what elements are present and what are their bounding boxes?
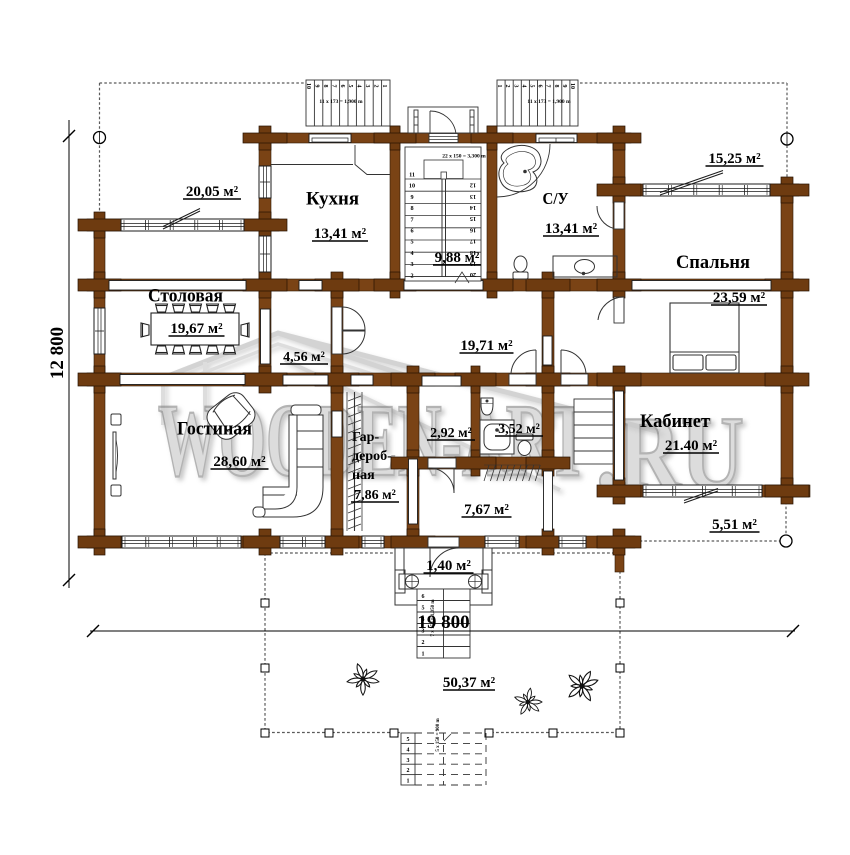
svg-text:5: 5 <box>528 85 534 88</box>
svg-text:2: 2 <box>504 84 510 87</box>
svg-text:3,52 м²: 3,52 м² <box>498 422 540 437</box>
svg-text:5: 5 <box>422 606 425 612</box>
svg-text:5,51 м²: 5,51 м² <box>712 517 757 533</box>
svg-text:11: 11 <box>409 172 415 179</box>
svg-text:4,56 м²: 4,56 м² <box>283 350 325 365</box>
svg-text:Гар-: Гар- <box>352 430 379 445</box>
svg-text:2: 2 <box>410 272 413 279</box>
svg-text:17: 17 <box>470 238 476 245</box>
svg-text:5: 5 <box>347 85 353 88</box>
svg-text:13: 13 <box>470 193 476 200</box>
svg-text:8: 8 <box>553 85 559 88</box>
svg-text:5: 5 <box>407 737 410 743</box>
svg-text:6: 6 <box>537 85 543 88</box>
svg-text:2: 2 <box>372 85 378 88</box>
svg-text:4: 4 <box>356 85 362 88</box>
svg-text:Кабинет: Кабинет <box>640 411 711 432</box>
svg-text:С/У: С/У <box>543 189 569 208</box>
svg-text:9: 9 <box>410 194 413 201</box>
svg-text:13,41 м²: 13,41 м² <box>314 226 367 242</box>
svg-text:3: 3 <box>410 261 413 268</box>
svg-text:1: 1 <box>381 85 387 88</box>
svg-text:4: 4 <box>407 747 410 753</box>
svg-text:7,67 м²: 7,67 м² <box>464 502 509 518</box>
svg-text:1: 1 <box>496 85 502 88</box>
svg-text:9: 9 <box>314 85 320 88</box>
svg-text:14: 14 <box>470 204 476 211</box>
svg-text:15: 15 <box>470 215 476 222</box>
svg-text:11 x 173 = 1,900 m: 11 x 173 = 1,900 m <box>319 99 363 105</box>
svg-text:5: 5 <box>410 239 413 246</box>
svg-text:4: 4 <box>520 85 526 88</box>
svg-text:6: 6 <box>339 85 345 88</box>
svg-text:9: 9 <box>561 85 567 88</box>
svg-text:22 x 150 = 3,300 m: 22 x 150 = 3,300 m <box>442 154 486 160</box>
svg-text:Столовая: Столовая <box>148 286 223 307</box>
svg-text:10: 10 <box>409 183 415 190</box>
svg-text:1: 1 <box>407 779 410 785</box>
svg-text:20: 20 <box>470 271 476 278</box>
svg-text:5 x 150 = 900 m: 5 x 150 = 900 m <box>436 718 441 752</box>
svg-text:ная: ная <box>352 468 375 483</box>
svg-text:10: 10 <box>569 83 575 89</box>
svg-text:7,86 м²: 7,86 м² <box>354 488 396 503</box>
svg-text:6: 6 <box>422 594 425 600</box>
svg-text:12: 12 <box>470 182 476 189</box>
svg-text:19 800: 19 800 <box>417 612 469 633</box>
svg-text:23,59 м²: 23,59 м² <box>713 290 766 306</box>
svg-text:28,60 м²: 28,60 м² <box>213 454 266 470</box>
svg-text:4: 4 <box>410 250 413 257</box>
svg-text:8: 8 <box>322 85 328 88</box>
svg-text:2: 2 <box>422 640 425 646</box>
svg-text:19,67 м²: 19,67 м² <box>170 321 223 337</box>
svg-text:2: 2 <box>407 768 410 774</box>
svg-text:50,37 м²: 50,37 м² <box>443 675 496 691</box>
svg-text:дероб-: дероб- <box>352 449 392 464</box>
svg-text:Кухня: Кухня <box>306 189 359 210</box>
svg-text:7: 7 <box>410 216 413 223</box>
svg-text:20,05 м²: 20,05 м² <box>186 184 239 200</box>
svg-text:12 800: 12 800 <box>47 327 68 379</box>
svg-text:16: 16 <box>470 226 476 233</box>
svg-text:Гостиная: Гостиная <box>177 419 252 440</box>
svg-text:21.40 м²: 21.40 м² <box>665 438 718 454</box>
svg-text:3: 3 <box>364 85 370 88</box>
svg-text:1,40 м²: 1,40 м² <box>426 558 471 574</box>
svg-text:10: 10 <box>305 83 311 89</box>
svg-text:8: 8 <box>410 205 413 212</box>
svg-text:11 x 173 = 1,900 m: 11 x 173 = 1,900 m <box>527 99 571 105</box>
svg-text:1: 1 <box>422 652 425 658</box>
svg-text:7: 7 <box>330 85 336 88</box>
svg-text:3: 3 <box>407 758 410 764</box>
svg-text:15,25 м²: 15,25 м² <box>708 151 761 167</box>
svg-text:2,92 м²: 2,92 м² <box>430 426 472 441</box>
svg-text:19,71 м²: 19,71 м² <box>460 338 513 354</box>
svg-text:Спальня: Спальня <box>676 252 750 273</box>
svg-text:6: 6 <box>410 228 413 235</box>
svg-text:13,41 м²: 13,41 м² <box>545 221 598 237</box>
svg-text:9,88 м²: 9,88 м² <box>435 250 480 266</box>
svg-text:3: 3 <box>512 85 518 88</box>
svg-text:7: 7 <box>545 85 551 88</box>
